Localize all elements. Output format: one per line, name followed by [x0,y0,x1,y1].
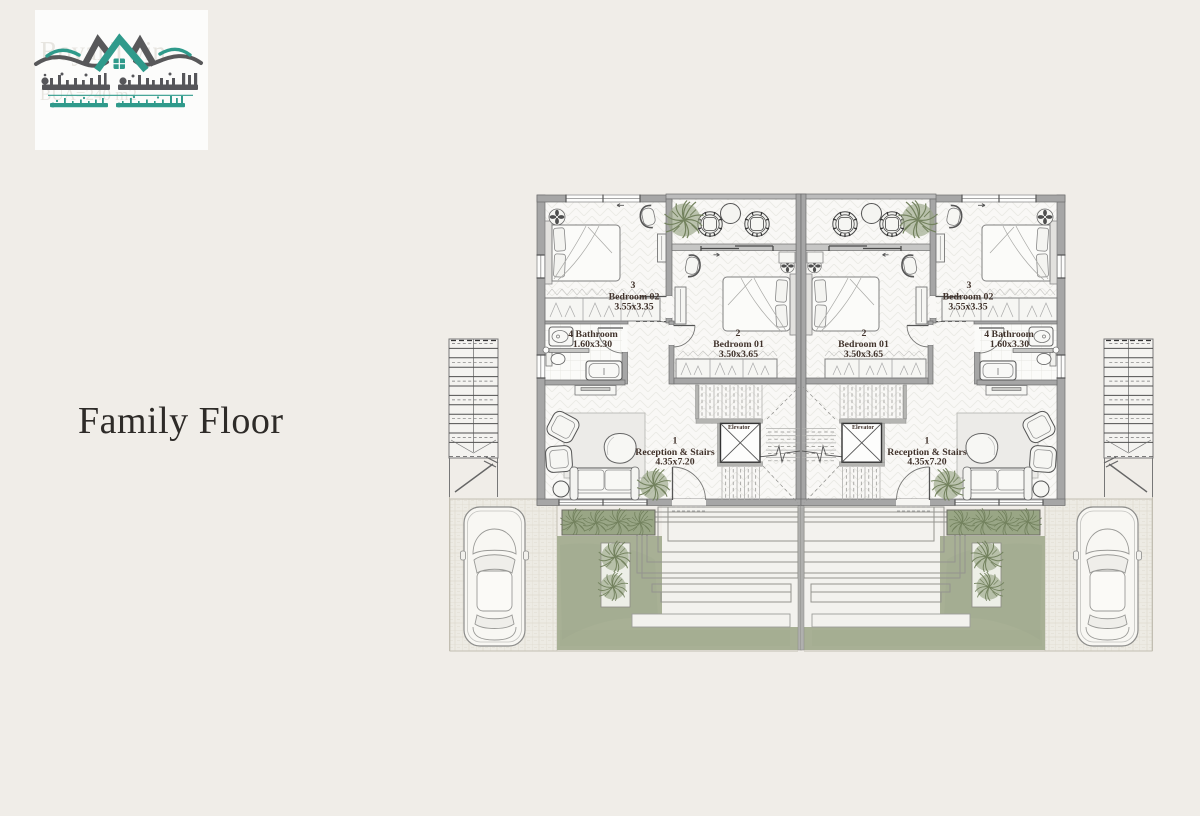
svg-text:3.50x3.65: 3.50x3.65 [719,349,758,360]
svg-text:4.35x7.20: 4.35x7.20 [907,457,946,468]
svg-text:4.35x7.20: 4.35x7.20 [655,457,694,468]
svg-text:2: 2 [736,328,741,339]
svg-text:2: 2 [862,328,867,339]
svg-text:3.55x3.35: 3.55x3.35 [614,302,653,313]
svg-text:1: 1 [925,436,930,447]
svg-text:3: 3 [967,280,972,291]
svg-text:Elevator: Elevator [728,425,750,431]
svg-text:1: 1 [673,436,678,447]
svg-text:1.60x3.30: 1.60x3.30 [990,339,1029,350]
svg-text:3.55x3.35: 3.55x3.35 [948,302,987,313]
svg-text:Family Floor: Family Floor [78,400,284,442]
svg-text:Elevator: Elevator [852,425,874,431]
svg-text:3: 3 [631,280,636,291]
svg-text:3.50x3.65: 3.50x3.65 [844,349,883,360]
svg-text:1.60x3.30: 1.60x3.30 [573,339,612,350]
